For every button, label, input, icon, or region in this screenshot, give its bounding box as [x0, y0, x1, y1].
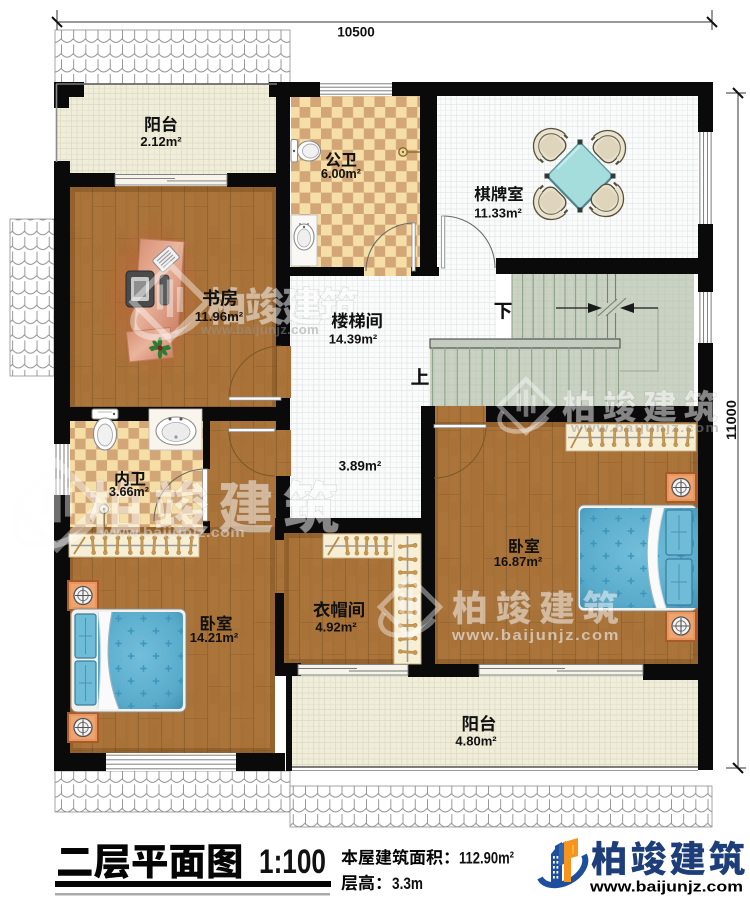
svg-text:4.92m²: 4.92m²	[315, 620, 357, 635]
svg-text:14.21m²: 14.21m²	[190, 630, 239, 645]
svg-text:3.66m²: 3.66m²	[109, 485, 149, 499]
svg-text:11.96m²: 11.96m²	[195, 309, 244, 324]
svg-text:www.baijunjz.com: www.baijunjz.com	[200, 322, 319, 337]
svg-text:10500: 10500	[337, 25, 375, 40]
svg-text:14.39m²: 14.39m²	[329, 332, 378, 347]
svg-text:112.90m²: 112.90m²	[459, 849, 514, 868]
svg-text:www.baijunjz.com: www.baijunjz.com	[451, 628, 620, 644]
svg-text:16.87m²: 16.87m²	[494, 554, 543, 569]
svg-text:11.33m²: 11.33m²	[474, 206, 522, 221]
svg-text:3.89m²: 3.89m²	[339, 459, 382, 474]
svg-text:www.baijunjz.com: www.baijunjz.com	[570, 421, 720, 435]
svg-text:6.00m²: 6.00m²	[321, 167, 361, 181]
svg-text:2.12m²: 2.12m²	[140, 134, 182, 149]
svg-text:11000: 11000	[724, 400, 739, 440]
svg-text:www.baijunjz.com: www.baijunjz.com	[589, 879, 743, 896]
svg-text:1:100: 1:100	[259, 843, 326, 881]
svg-text:3.3m: 3.3m	[392, 874, 423, 893]
svg-text:www.baijunjz.com: www.baijunjz.com	[99, 525, 245, 540]
svg-text:4.80m²: 4.80m²	[455, 734, 497, 749]
